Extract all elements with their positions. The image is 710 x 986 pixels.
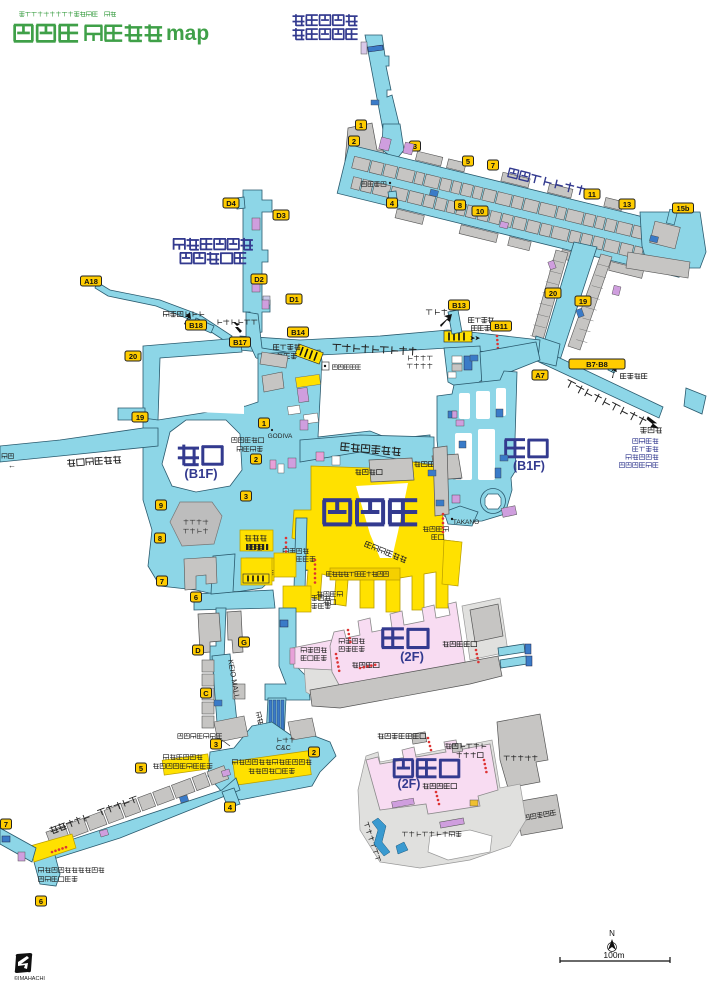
svg-text:19: 19 (136, 413, 144, 422)
svg-text:TAKANO: TAKANO (453, 519, 479, 526)
svg-text:GODIVA: GODIVA (268, 433, 293, 440)
svg-text:D1: D1 (289, 295, 299, 304)
svg-text:15b: 15b (677, 204, 690, 213)
svg-text:2: 2 (254, 455, 258, 464)
svg-text:B7·B8: B7·B8 (586, 360, 608, 369)
svg-text:B18: B18 (189, 321, 203, 330)
svg-text:13: 13 (623, 200, 631, 209)
svg-text:©IMAHACHI: ©IMAHACHI (14, 975, 45, 982)
svg-text:20: 20 (549, 289, 557, 298)
svg-text:6: 6 (39, 897, 43, 906)
svg-text:D2: D2 (254, 275, 264, 284)
svg-text:11: 11 (588, 190, 596, 199)
svg-text:A18: A18 (84, 277, 98, 286)
svg-text:5: 5 (466, 157, 470, 166)
svg-text:6: 6 (194, 593, 198, 602)
svg-text:7: 7 (4, 820, 8, 829)
svg-text:C: C (203, 689, 209, 698)
svg-text:1: 1 (359, 121, 363, 130)
svg-text:D3: D3 (276, 211, 286, 220)
svg-text:2: 2 (352, 137, 356, 146)
svg-text:B17: B17 (233, 338, 247, 347)
svg-text:8: 8 (458, 201, 462, 210)
svg-text:19: 19 (579, 297, 587, 306)
svg-text:C&C: C&C (276, 745, 291, 752)
svg-text:9: 9 (159, 501, 163, 510)
svg-text:10: 10 (476, 207, 484, 216)
svg-text:3: 3 (244, 492, 248, 501)
svg-text:(B1F): (B1F) (184, 466, 217, 481)
svg-text:5: 5 (139, 764, 143, 773)
svg-text:100m: 100m (603, 950, 624, 960)
svg-text:B14: B14 (291, 328, 306, 337)
svg-text:B13: B13 (452, 301, 466, 310)
svg-text:D4: D4 (226, 199, 236, 208)
svg-text:A7: A7 (535, 371, 545, 380)
svg-text:B11: B11 (494, 322, 507, 331)
svg-text:(2F): (2F) (400, 649, 424, 664)
svg-text:(B1F): (B1F) (513, 459, 545, 473)
svg-text:2: 2 (312, 748, 316, 757)
svg-text:(2F): (2F) (398, 777, 421, 791)
svg-text:D: D (195, 646, 201, 655)
svg-text:N: N (609, 929, 615, 938)
svg-text:G: G (241, 638, 247, 647)
svg-text:←: ← (8, 461, 16, 470)
svg-text:1: 1 (262, 419, 266, 428)
svg-text:3: 3 (214, 740, 218, 749)
svg-text:7: 7 (491, 161, 495, 170)
svg-text:7: 7 (160, 577, 164, 586)
svg-text:➤➤: ➤➤ (470, 335, 481, 342)
svg-text:map: map (166, 22, 209, 45)
svg-text:8: 8 (158, 534, 162, 543)
svg-text:20: 20 (129, 352, 137, 361)
